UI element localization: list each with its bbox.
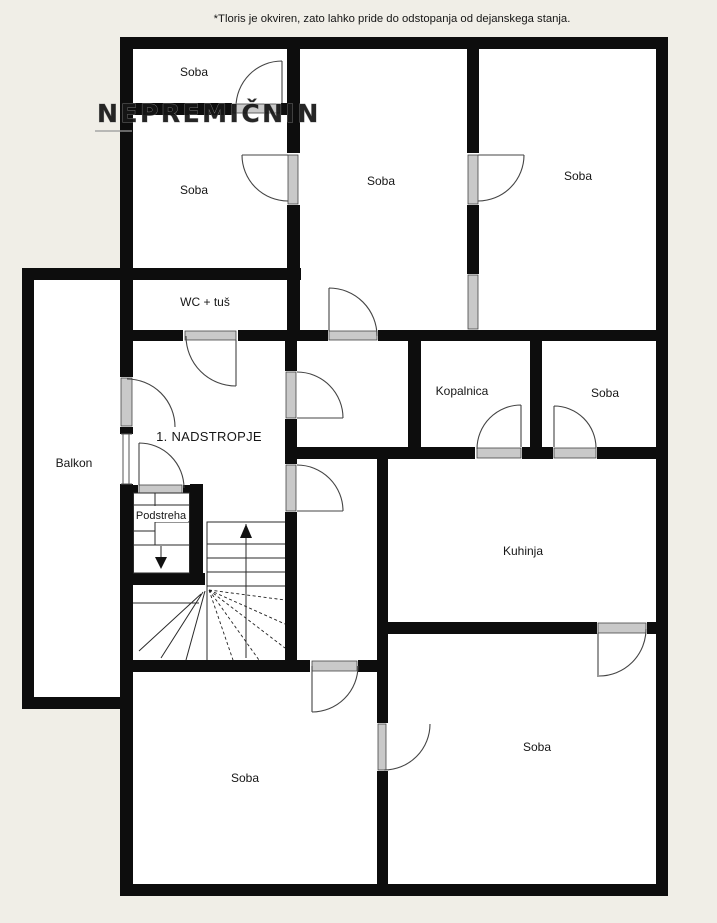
disclaimer-text: *Tloris je okviren, zato lahko pride do … xyxy=(214,13,571,25)
balcony-fill xyxy=(22,268,132,709)
wall-outer-bottom xyxy=(120,884,668,896)
room-label-balkon: Balkon xyxy=(56,456,93,470)
floor-level-label: 1. NADSTROPJE xyxy=(156,429,262,444)
floorplan-page: *Tloris je okviren, zato lahko pride do … xyxy=(0,0,717,923)
room-label-podstreha: Podstreha xyxy=(136,510,187,522)
room-label-soba-top-middle: Soba xyxy=(367,174,395,188)
room-label-soba-bottom-left: Soba xyxy=(231,771,259,785)
building-fill xyxy=(120,37,668,896)
room-label-kopalnica: Kopalnica xyxy=(436,384,489,398)
agency-watermark: NEPREMIČNIN xyxy=(97,98,321,128)
room-label-soba-top-right: Soba xyxy=(564,169,592,183)
wall-outer-left xyxy=(120,37,133,377)
room-label-soba-bottom-right: Soba xyxy=(523,740,551,754)
wall-balcony-top xyxy=(22,268,133,280)
floorplan-svg: *Tloris je okviren, zato lahko pride do … xyxy=(0,0,717,923)
room-label-soba-mid-left: Soba xyxy=(180,183,208,197)
room-label-soba-top-left: Soba xyxy=(180,65,208,79)
wall-balcony-left xyxy=(22,268,34,709)
wall-outer-top xyxy=(120,37,668,49)
room-label-soba-small: Soba xyxy=(591,386,619,400)
wall-outer-right xyxy=(656,37,668,896)
room-label-kuhinja: Kuhinja xyxy=(503,544,543,558)
room-label-wc: WC + tuš xyxy=(180,295,230,309)
wall-balcony-bottom xyxy=(22,697,133,709)
